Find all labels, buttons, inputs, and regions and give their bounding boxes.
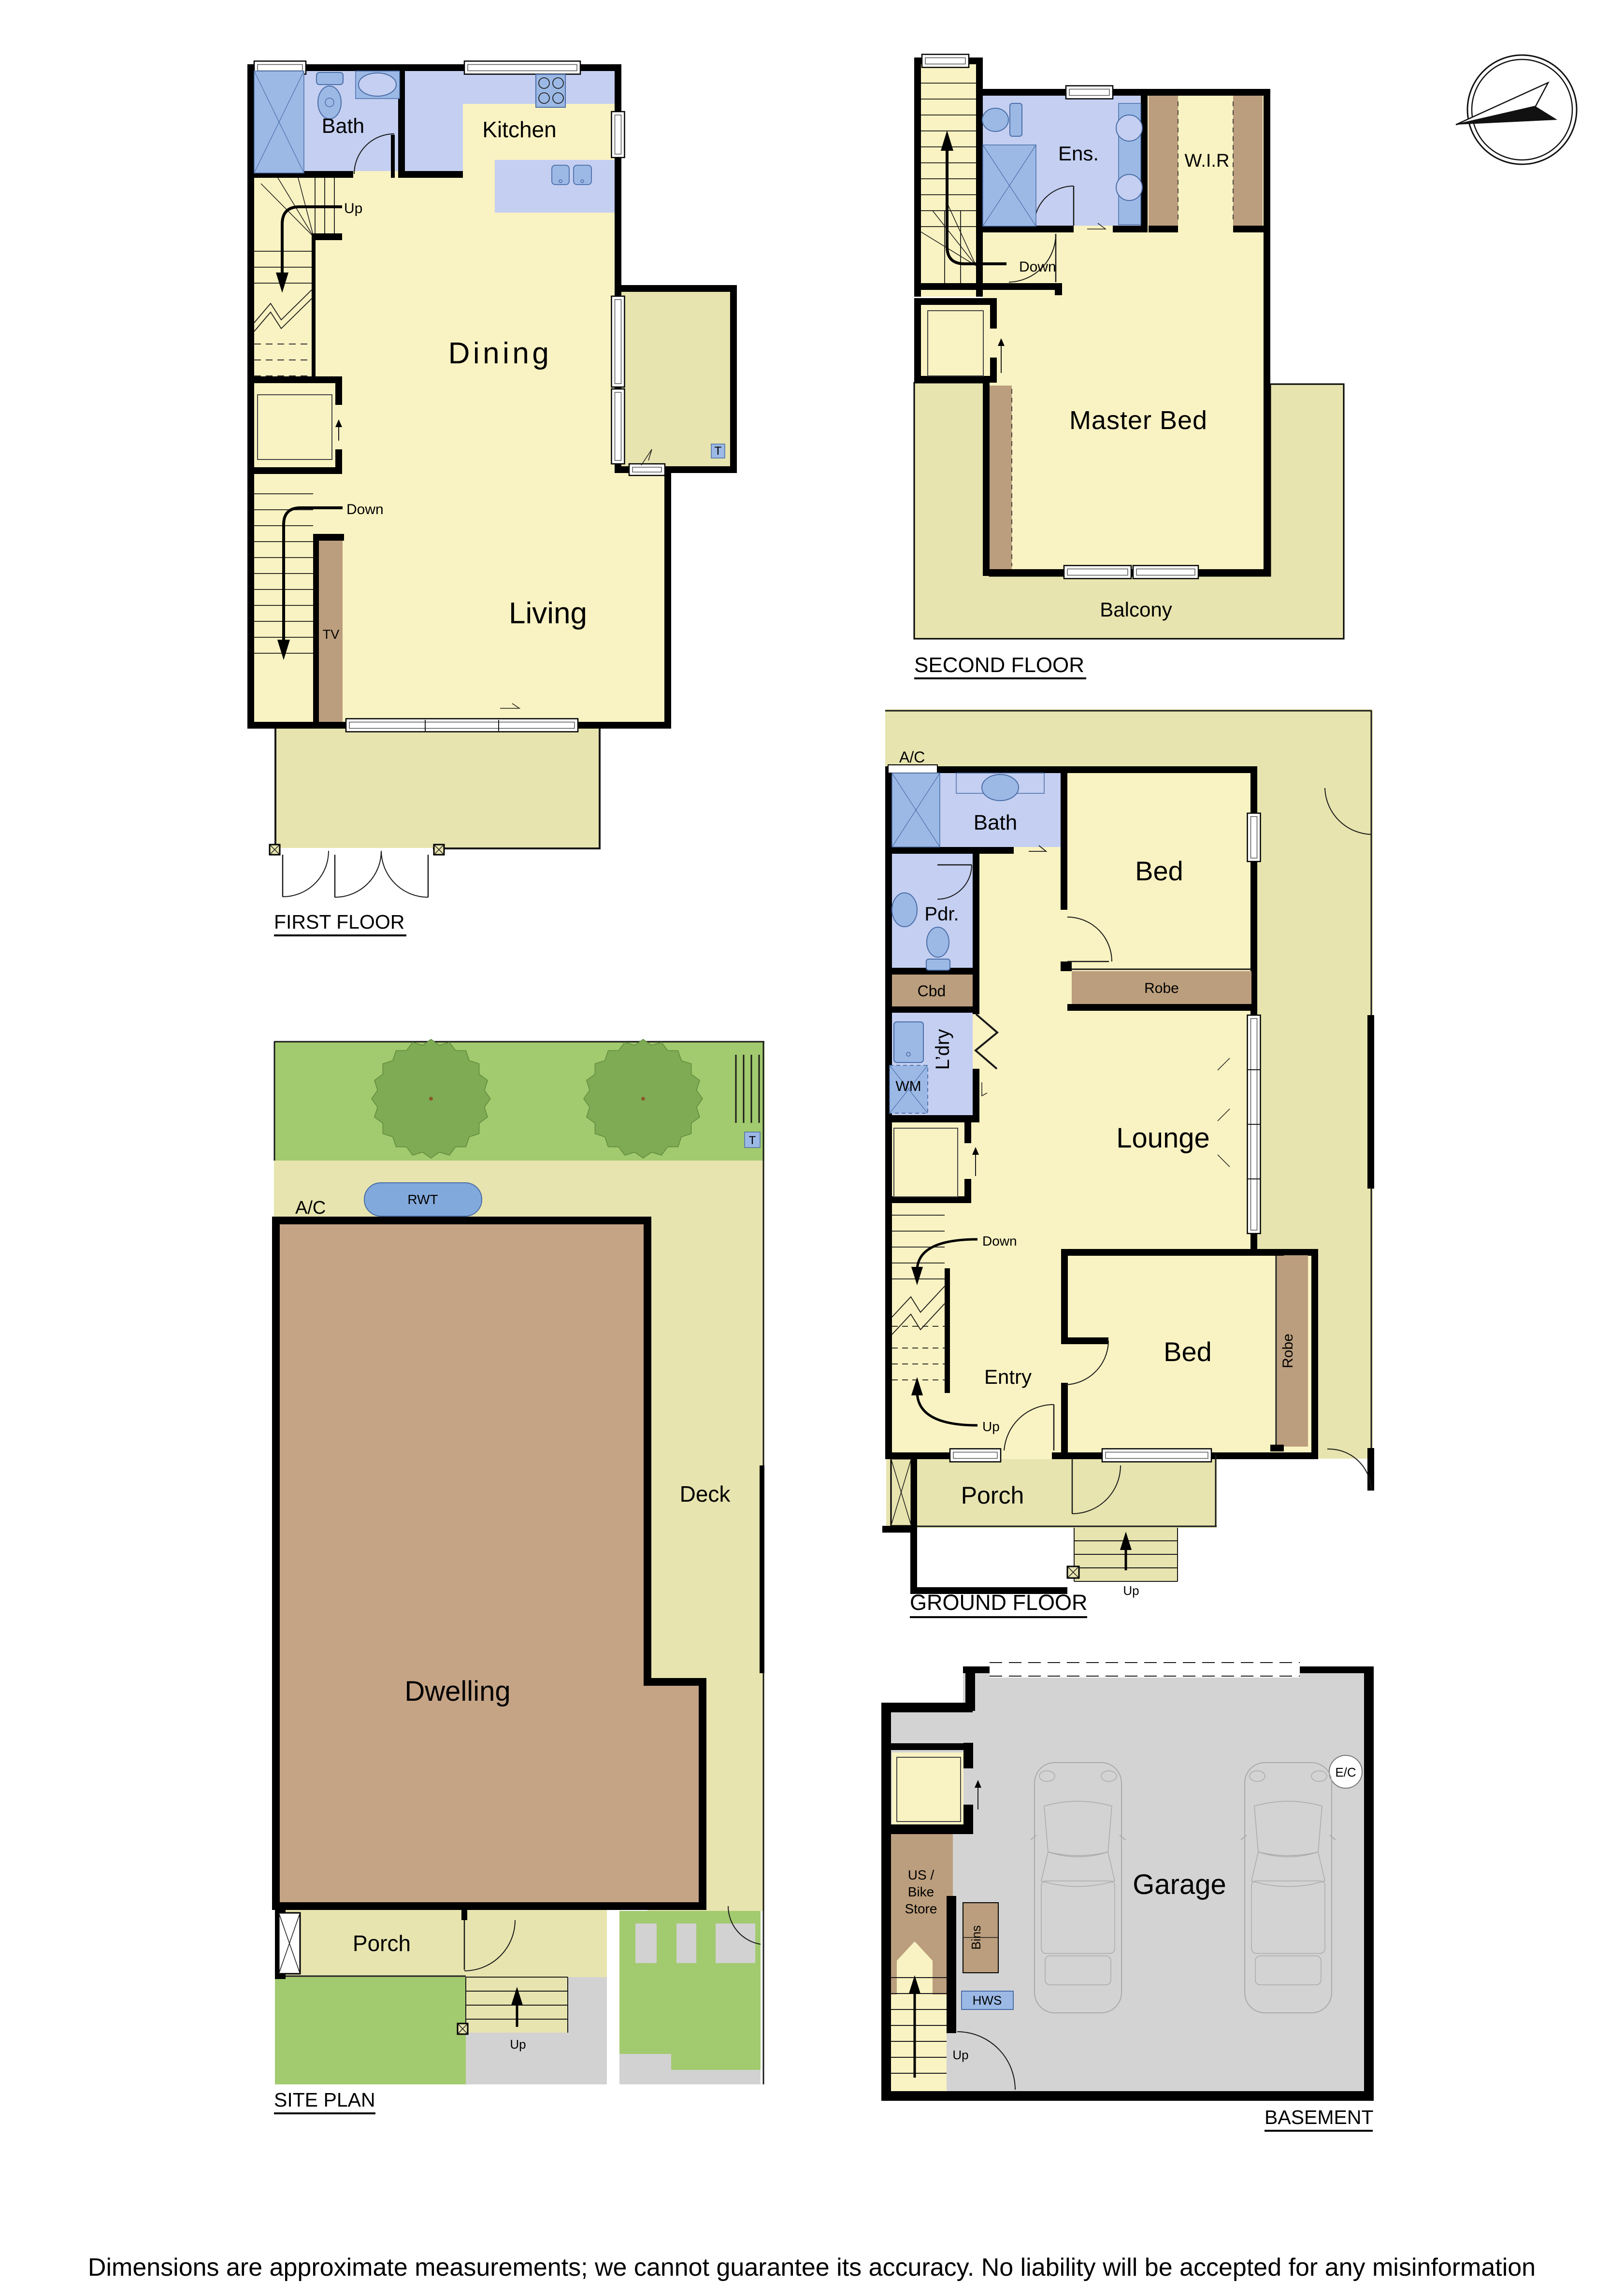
svg-text:SECOND FLOOR: SECOND FLOOR	[914, 653, 1084, 677]
svg-text:Bike: Bike	[908, 1884, 934, 1899]
svg-text:Bed: Bed	[1164, 1336, 1212, 1367]
svg-text:Master Bed: Master Bed	[1069, 406, 1207, 435]
svg-text:W.I.R: W.I.R	[1185, 151, 1230, 171]
svg-text:A/C: A/C	[295, 1198, 326, 1218]
svg-text:Porch: Porch	[961, 1482, 1024, 1509]
svg-text:Dimensions are approximate mea: Dimensions are approximate measurements;…	[88, 2253, 1536, 2282]
svg-text:Kitchen: Kitchen	[482, 117, 556, 142]
svg-text:Bath: Bath	[322, 115, 364, 138]
svg-text:GROUND FLOOR: GROUND FLOOR	[910, 1590, 1088, 1615]
svg-text:Garage: Garage	[1133, 1869, 1226, 1900]
svg-text:HWS: HWS	[973, 1993, 1002, 2008]
svg-text:WM: WM	[895, 1078, 921, 1094]
svg-text:Up: Up	[510, 2037, 526, 2052]
svg-text:Store: Store	[905, 1901, 937, 1916]
svg-text:Up: Up	[1123, 1583, 1139, 1598]
svg-text:Balcony: Balcony	[1100, 598, 1172, 621]
svg-text:Bed: Bed	[1135, 856, 1183, 886]
svg-text:Robe: Robe	[1280, 1334, 1296, 1368]
svg-text:E/C: E/C	[1335, 1765, 1356, 1779]
svg-text:Lounge: Lounge	[1116, 1122, 1210, 1154]
svg-text:Down: Down	[982, 1234, 1017, 1248]
svg-text:RWT: RWT	[407, 1192, 438, 1207]
svg-text:Cbd: Cbd	[918, 982, 946, 1000]
svg-text:Living: Living	[509, 597, 587, 630]
svg-text:T: T	[715, 445, 722, 458]
svg-text:FIRST FLOOR: FIRST FLOOR	[274, 911, 404, 933]
svg-text:Down: Down	[346, 502, 384, 517]
svg-text:TV: TV	[323, 627, 340, 642]
svg-text:L’dry: L’dry	[932, 1029, 953, 1070]
svg-text:Robe: Robe	[1144, 980, 1179, 996]
svg-text:Down: Down	[1019, 259, 1056, 275]
svg-text:US /: US /	[908, 1867, 934, 1882]
svg-text:Bins: Bins	[969, 1925, 983, 1950]
svg-text:Up: Up	[982, 1419, 1000, 1434]
svg-text:Entry: Entry	[984, 1365, 1032, 1388]
svg-text:A/C: A/C	[899, 748, 925, 766]
svg-text:T: T	[749, 1134, 756, 1147]
svg-text:Ens.: Ens.	[1058, 142, 1099, 165]
svg-text:Pdr.: Pdr.	[924, 904, 959, 925]
svg-text:Porch: Porch	[353, 1931, 411, 1956]
svg-text:Dining: Dining	[448, 337, 552, 370]
svg-text:Bath: Bath	[974, 811, 1018, 834]
svg-text:SITE PLAN: SITE PLAN	[274, 2089, 375, 2111]
svg-text:Up: Up	[952, 2048, 968, 2062]
svg-text:Up: Up	[344, 201, 362, 216]
svg-text:BASEMENT: BASEMENT	[1265, 2106, 1374, 2128]
svg-text:Dwelling: Dwelling	[404, 1676, 510, 1707]
svg-text:Deck: Deck	[680, 1481, 731, 1507]
